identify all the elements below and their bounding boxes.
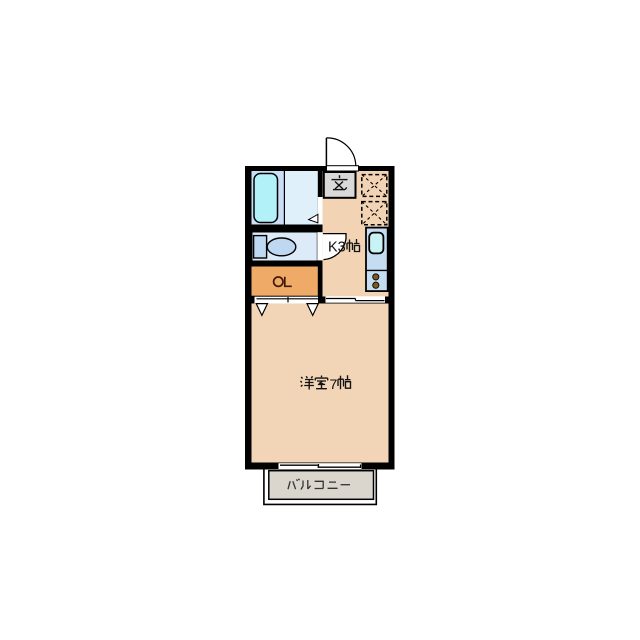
svg-text:K3: K3: [328, 240, 346, 256]
svg-text:7: 7: [330, 376, 338, 392]
